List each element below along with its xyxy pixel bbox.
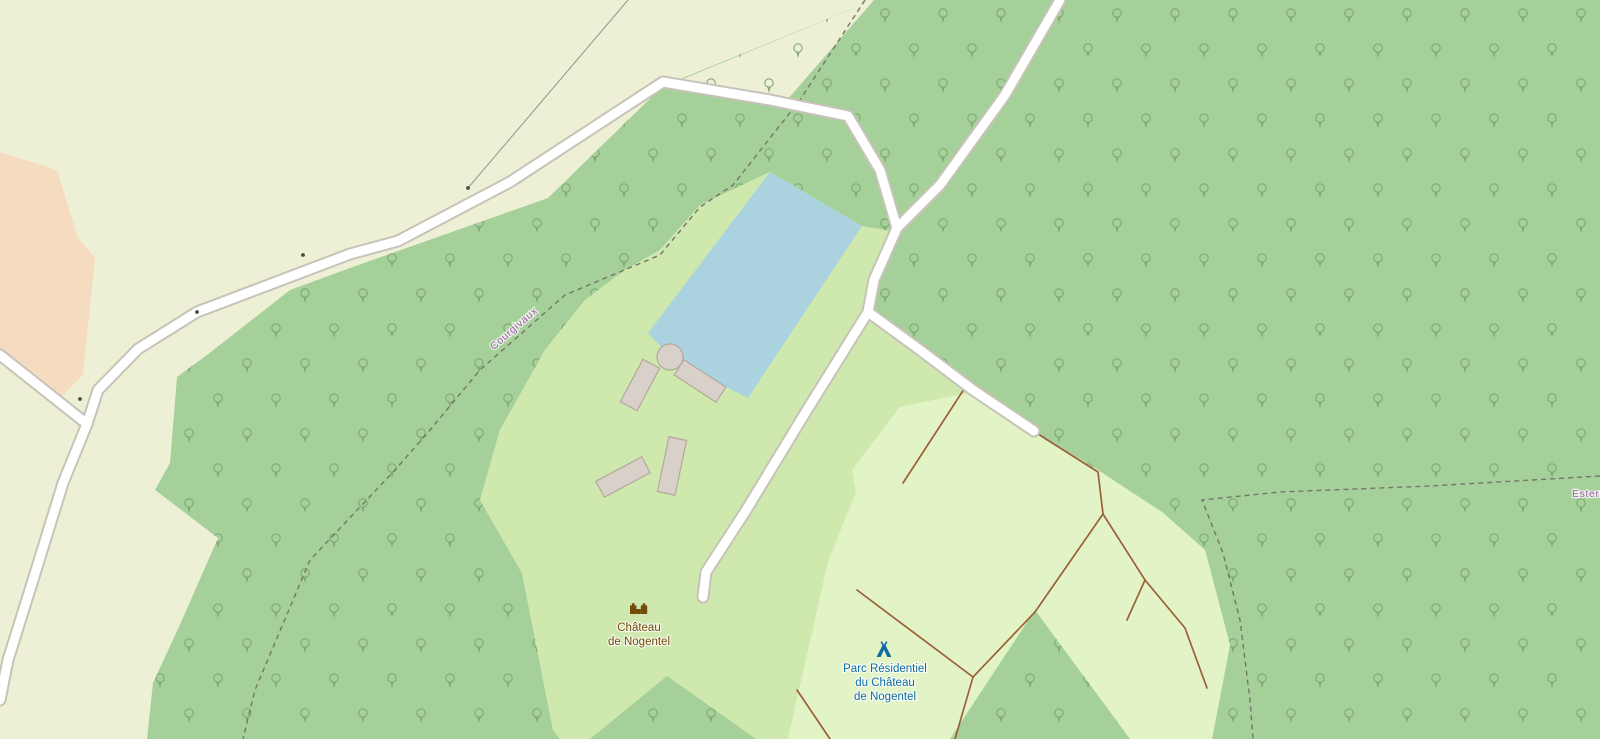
map-canvas[interactable]: Château de Nogentel Parc Résidentiel du … <box>0 0 1600 739</box>
boundary-label-esternay: Estern <box>1572 488 1600 500</box>
castle-label-line2[interactable]: de Nogentel <box>608 636 670 648</box>
castle-label-line1[interactable]: Château <box>617 622 660 634</box>
campsite-label-line3[interactable]: de Nogentel <box>854 691 916 703</box>
campsite-label-line2[interactable]: du Château <box>855 677 914 689</box>
building-round-tower <box>657 344 683 370</box>
campsite-label-line1[interactable]: Parc Résidentiel <box>843 663 927 675</box>
